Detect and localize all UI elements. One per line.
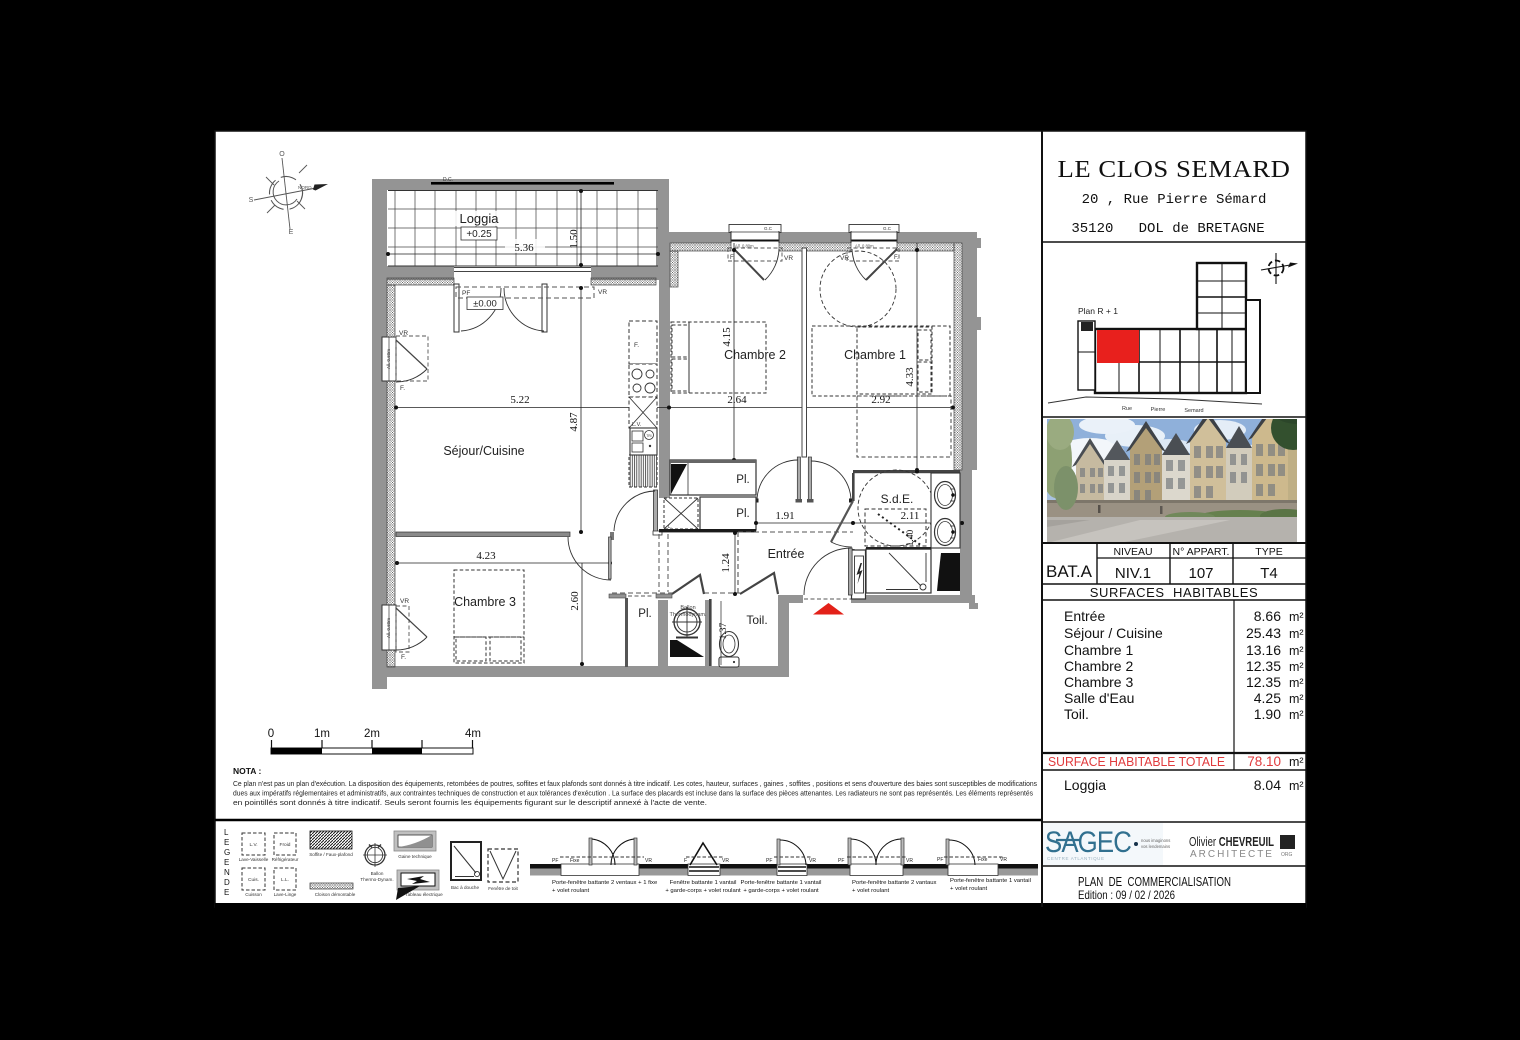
svg-text:F: F	[684, 858, 687, 864]
svg-text:Toil.: Toil.	[1064, 706, 1089, 722]
svg-text:L: L	[224, 828, 229, 837]
svg-text:Ce plan n'est pas un plan d'ex: Ce plan n'est pas un plan d'exécution. L…	[233, 781, 1038, 788]
svg-text:Chambre 2: Chambre 2	[1064, 658, 1133, 674]
svg-text:D: D	[224, 878, 230, 887]
svg-text:2.60: 2.60	[569, 591, 581, 611]
svg-text:VR: VR	[1000, 857, 1007, 863]
svg-text:Fixe: Fixe	[978, 857, 988, 863]
svg-text:PF: PF	[462, 290, 470, 297]
svg-text:12.35: 12.35	[1246, 658, 1281, 674]
svg-text:m²: m²	[1289, 644, 1304, 658]
svg-text:Fenêtre battante 1 vantail: Fenêtre battante 1 vantail	[670, 880, 737, 886]
svg-text:Loggia: Loggia	[1064, 777, 1106, 793]
svg-text:Cloison démontable: Cloison démontable	[315, 892, 356, 897]
svg-text:Pl.: Pl.	[736, 474, 749, 486]
svg-text:D.C.: D.C.	[443, 177, 453, 183]
svg-text:m²: m²	[1289, 708, 1304, 722]
svg-text:Pierre: Pierre	[1151, 407, 1166, 413]
svg-text:Thermodynam.: Thermodynam.	[670, 612, 707, 618]
svg-text:4.33: 4.33	[904, 367, 916, 387]
svg-text:±0.00: ±0.00	[473, 299, 497, 310]
svg-text:+ volet roulant: + volet roulant	[552, 888, 590, 894]
svg-text:1.91: 1.91	[775, 510, 794, 522]
svg-text:1m: 1m	[314, 728, 330, 740]
svg-text:20 , Rue Pierre Sémard: 20 , Rue Pierre Sémard	[1082, 192, 1267, 208]
svg-text:4.87: 4.87	[568, 412, 580, 432]
svg-text:N: N	[224, 868, 230, 877]
svg-text:13.16: 13.16	[1246, 642, 1281, 658]
svg-text:G.C: G.C	[764, 226, 773, 231]
svg-text:VR: VR	[809, 858, 816, 864]
svg-text:+ garde-corps + volet roulant: + garde-corps + volet roulant	[665, 888, 741, 894]
svg-text:Chambre 3: Chambre 3	[1064, 674, 1133, 690]
svg-text:m²: m²	[1289, 676, 1304, 690]
svg-text:Soffite / Faux-plafond: Soffite / Faux-plafond	[309, 852, 353, 857]
svg-text:1.50: 1.50	[568, 229, 580, 249]
svg-text:2.11: 2.11	[901, 510, 920, 522]
svg-text:PLAN DE COMMERCIALISATION: PLAN DE COMMERCIALISATION	[1078, 875, 1231, 889]
svg-text:VR: VR	[645, 858, 652, 864]
svg-text:CENTRE ATLANTIQUE: CENTRE ATLANTIQUE	[1047, 856, 1105, 861]
svg-text:F.: F.	[400, 385, 405, 392]
svg-text:Fixe: Fixe	[570, 858, 580, 864]
svg-text:4.25: 4.25	[1254, 690, 1281, 706]
svg-text:5.22: 5.22	[510, 394, 529, 406]
svg-text:1.24: 1.24	[720, 553, 732, 573]
svg-text:Séjour/Cuisine: Séjour/Cuisine	[443, 444, 524, 458]
svg-text:Entrée: Entrée	[768, 547, 805, 561]
svg-text:+ volet roulant: + volet roulant	[950, 886, 988, 892]
svg-text:25.43: 25.43	[1246, 625, 1281, 641]
svg-text:Cuisson: Cuisson	[245, 892, 262, 897]
svg-text:TRI: TRI	[646, 434, 651, 438]
svg-text:1.90: 1.90	[1254, 706, 1281, 722]
svg-text:G: G	[224, 848, 230, 857]
svg-text:VR: VR	[906, 858, 913, 864]
svg-text:Porte-fenêtre battante 2 venta: Porte-fenêtre battante 2 ventaux + 1 fix…	[552, 880, 658, 886]
svg-text:PF: PF	[552, 858, 558, 864]
svg-text:Toil.: Toil.	[746, 613, 767, 627]
svg-text:Fenêtre de toit: Fenêtre de toit	[488, 886, 518, 891]
svg-text:m²: m²	[1289, 660, 1304, 674]
svg-text:E: E	[224, 888, 229, 897]
svg-text:+ garde-corps + volet roulant: + garde-corps + volet roulant	[743, 888, 819, 894]
svg-text:Olivier CHEVREUIL: Olivier CHEVREUIL	[1189, 835, 1274, 849]
svg-text:en pointillés sont donnés à ti: en pointillés sont donnés à titre indica…	[233, 800, 707, 807]
svg-text:PF: PF	[937, 857, 943, 863]
svg-text:ORG: ORG	[1281, 852, 1293, 858]
svg-text:+0.25: +0.25	[466, 229, 492, 240]
svg-text:2.64: 2.64	[727, 394, 747, 406]
svg-text:E: E	[224, 838, 229, 847]
svg-text:Tableau électrique: Tableau électrique	[405, 892, 443, 897]
svg-text:VR: VR	[598, 289, 607, 296]
svg-text:m²: m²	[1289, 779, 1304, 793]
svg-text:nous imaginons: nous imaginons	[1141, 838, 1170, 843]
svg-text:ARCHITECTE: ARCHITECTE	[1190, 849, 1274, 860]
svg-text:S.d.E.: S.d.E.	[881, 492, 914, 506]
svg-text:VR: VR	[722, 858, 729, 864]
svg-text:VR: VR	[784, 255, 793, 262]
svg-text:Bac à douche: Bac à douche	[451, 885, 480, 890]
svg-text:2m: 2m	[364, 728, 380, 740]
svg-text:L.V.: L.V.	[632, 422, 642, 428]
svg-text:All. 0.60m: All. 0.60m	[386, 618, 391, 638]
svg-text:m²: m²	[1289, 755, 1304, 769]
svg-text:Chambre 2: Chambre 2	[724, 348, 786, 362]
svg-text:SURFACE HABITABLE TOTALE: SURFACE HABITABLE TOTALE	[1048, 754, 1225, 769]
svg-text:4.15: 4.15	[721, 327, 733, 347]
svg-text:5.36: 5.36	[514, 242, 534, 254]
svg-text:Ballon: Ballon	[680, 605, 695, 611]
svg-text:Réfrigérateur: Réfrigérateur	[272, 857, 299, 862]
svg-text:m²: m²	[1289, 627, 1304, 641]
svg-text:Lave-Vaisselle: Lave-Vaisselle	[239, 857, 269, 862]
svg-text:Lave-Linge: Lave-Linge	[274, 892, 297, 897]
svg-text:NIVEAU: NIVEAU	[1113, 546, 1152, 558]
svg-text:Chambre 1: Chambre 1	[844, 348, 906, 362]
svg-text:N° APPART.: N° APPART.	[1173, 546, 1230, 558]
svg-text:4m: 4m	[465, 728, 481, 740]
svg-text:4.23: 4.23	[476, 550, 496, 562]
svg-text:vos lendemains: vos lendemains	[1141, 844, 1170, 849]
svg-text:Pl.: Pl.	[736, 508, 749, 520]
svg-text:Porte-fenêtre battante 2 vanta: Porte-fenêtre battante 2 vantaux	[852, 880, 937, 886]
svg-text:Cuis.: Cuis.	[248, 877, 259, 883]
svg-text:O: O	[279, 151, 285, 158]
svg-text:107: 107	[1188, 565, 1213, 582]
svg-text:PF: PF	[838, 858, 844, 864]
svg-text:L.L.: L.L.	[281, 877, 289, 883]
svg-text:m²: m²	[1289, 610, 1304, 624]
svg-text:NORD: NORD	[298, 185, 312, 190]
svg-text:Rue: Rue	[1122, 406, 1132, 412]
svg-text:All. 0.80m: All. 0.80m	[855, 244, 874, 249]
svg-text:Ballon: Ballon	[371, 871, 384, 876]
svg-text:Chambre 1: Chambre 1	[1064, 642, 1133, 658]
svg-text:0: 0	[268, 728, 274, 740]
svg-text:8.04: 8.04	[1254, 777, 1281, 793]
svg-text:1.37: 1.37	[719, 622, 729, 639]
svg-text:dues aux impératifs réglementa: dues aux impératifs réglementaires et ad…	[233, 791, 1034, 798]
svg-text:T4: T4	[1260, 565, 1278, 582]
svg-text:Plan R + 1: Plan R + 1	[1078, 306, 1118, 316]
svg-text:Porte-fenêtre battante 1 vanta: Porte-fenêtre battante 1 vantail	[741, 880, 822, 886]
svg-text:L.: L.	[668, 524, 672, 529]
svg-text:SAGEC: SAGEC	[1045, 826, 1131, 859]
svg-text:m²: m²	[1289, 692, 1304, 706]
svg-text:G.C: G.C	[883, 226, 892, 231]
svg-text:Gaine technique: Gaine technique	[398, 854, 432, 859]
svg-text:F.: F.	[894, 255, 899, 261]
svg-text:8.66: 8.66	[1254, 608, 1281, 624]
svg-text:E: E	[289, 229, 294, 236]
svg-text:+ volet roulant: + volet roulant	[852, 888, 890, 894]
svg-text:VR: VR	[400, 598, 409, 605]
svg-text:BAT.A: BAT.A	[1046, 562, 1093, 581]
svg-text:Edition : 09 / 02 / 2026: Edition : 09 / 02 / 2026	[1078, 888, 1175, 902]
svg-text:F.: F.	[634, 342, 639, 349]
svg-text:PF: PF	[766, 858, 772, 864]
svg-text:Salle d'Eau: Salle d'Eau	[1064, 690, 1134, 706]
svg-text:Chambre 3: Chambre 3	[454, 595, 516, 609]
svg-text:F.: F.	[401, 654, 406, 661]
svg-text:1.40: 1.40	[906, 529, 916, 546]
svg-text:Froid: Froid	[280, 842, 291, 848]
svg-text:TYPE: TYPE	[1255, 546, 1282, 558]
svg-text:78.10: 78.10	[1247, 754, 1281, 769]
svg-text:VR: VR	[840, 255, 849, 262]
svg-text:LE CLOS SEMARD: LE CLOS SEMARD	[1058, 157, 1291, 183]
svg-text:Entrée: Entrée	[1064, 608, 1105, 624]
svg-text:Thermo-Dynam.: Thermo-Dynam.	[360, 877, 393, 882]
svg-text:12.35: 12.35	[1246, 674, 1281, 690]
svg-text:E: E	[224, 858, 229, 867]
svg-text:NOTA :: NOTA :	[233, 766, 261, 776]
svg-text:Porte-fenêtre battante 1 vanta: Porte-fenêtre battante 1 vantail	[950, 878, 1031, 884]
svg-text:35120 DOL de BRETAGNE: 35120 DOL de BRETAGNE	[1071, 221, 1264, 237]
svg-text:L.V.: L.V.	[249, 842, 257, 848]
svg-text:VR: VR	[399, 330, 408, 337]
svg-text:Loggia: Loggia	[459, 211, 499, 226]
svg-text:Semard: Semard	[1184, 408, 1203, 414]
svg-text:S: S	[249, 197, 254, 204]
svg-text:All. 0.60m: All. 0.60m	[386, 349, 391, 369]
svg-text:SURFACES HABITABLES: SURFACES HABITABLES	[1090, 585, 1259, 600]
svg-text:NIV.1: NIV.1	[1115, 565, 1151, 582]
svg-text:Pl.: Pl.	[638, 608, 651, 620]
svg-text:Séjour / Cuisine: Séjour / Cuisine	[1064, 625, 1163, 641]
